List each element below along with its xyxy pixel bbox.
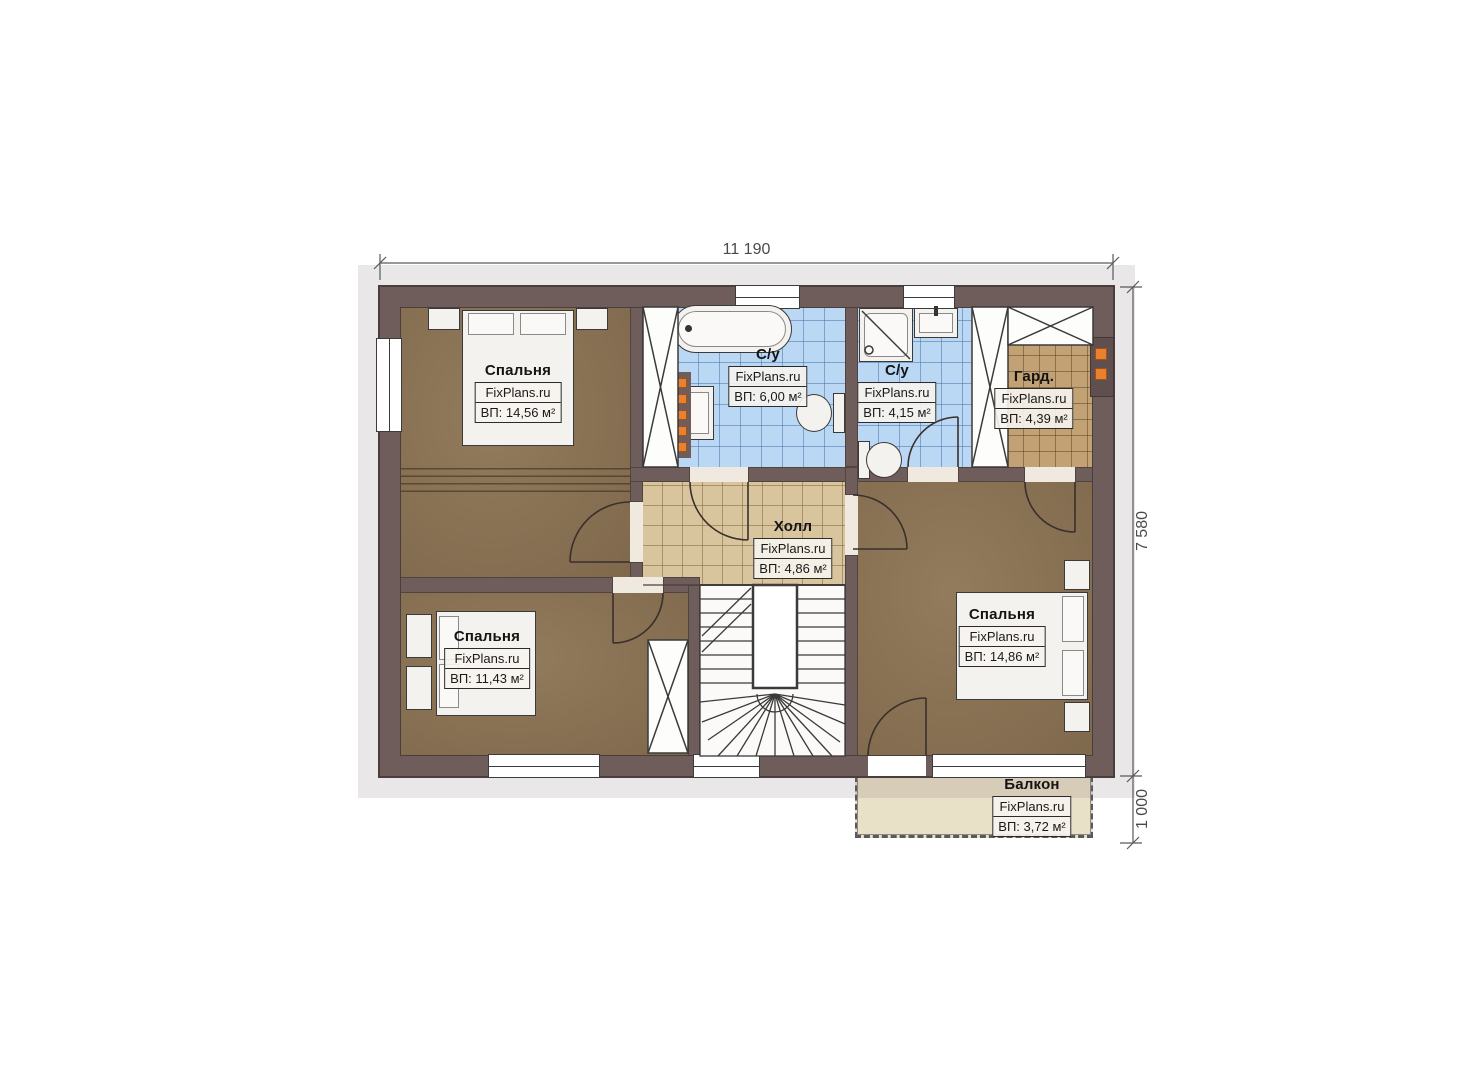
room-area: ВП: 11,43 м² xyxy=(445,668,529,688)
bathtub-faucet xyxy=(685,325,692,332)
window-balcony-glazing xyxy=(932,754,1086,778)
window-top-bathroom-ensuite xyxy=(903,285,955,309)
room-area: ВП: 4,86 м² xyxy=(754,558,831,578)
label-box: FixPlans.ru ВП: 4,86 м² xyxy=(753,538,832,579)
nightstand xyxy=(1064,702,1090,732)
towel-radiator-segment xyxy=(677,410,687,420)
bathtub-inner xyxy=(678,311,786,347)
watermark-text: FixPlans.ru xyxy=(960,627,1045,646)
room-name: Спальня xyxy=(959,606,1046,623)
toilet-tank xyxy=(833,393,845,433)
nightstand xyxy=(1064,560,1090,590)
label-box: FixPlans.ru ВП: 4,15 м² xyxy=(857,382,936,423)
pillow xyxy=(520,313,566,335)
towel-radiator-segment xyxy=(677,426,687,436)
watermark-text: FixPlans.ru xyxy=(858,383,935,402)
dimension-top-width: 11 190 xyxy=(380,241,1113,259)
room-label-bedroom-master: Спальня FixPlans.ru ВП: 14,86 м² xyxy=(959,606,1046,667)
sink-basin xyxy=(919,313,953,333)
room-name: Спальня xyxy=(444,628,530,645)
watermark-text: FixPlans.ru xyxy=(729,367,806,386)
label-box: FixPlans.ru ВП: 3,72 м² xyxy=(992,796,1071,837)
room-area: ВП: 14,86 м² xyxy=(960,646,1045,666)
nightstand xyxy=(406,666,432,710)
room-label-bathroom-main: С/у FixPlans.ru ВП: 6,00 м² xyxy=(728,346,807,407)
room-label-hall: Холл FixPlans.ru ВП: 4,86 м² xyxy=(753,518,832,579)
towel-radiator-segment xyxy=(677,442,687,452)
label-box: FixPlans.ru ВП: 4,39 м² xyxy=(994,388,1073,429)
watermark-text: FixPlans.ru xyxy=(995,389,1072,408)
toilet-bowl xyxy=(866,442,902,478)
nightstand xyxy=(428,308,460,330)
room-area: ВП: 4,15 м² xyxy=(858,402,935,422)
room-name: Балкон xyxy=(992,776,1071,793)
room-area: ВП: 14,56 м² xyxy=(476,402,561,422)
towel-radiator-segment xyxy=(677,394,687,404)
towel-radiator-segment xyxy=(677,378,687,388)
label-box: FixPlans.ru ВП: 14,86 м² xyxy=(959,626,1046,667)
room-name: Холл xyxy=(753,518,832,535)
label-box: FixPlans.ru ВП: 11,43 м² xyxy=(444,648,530,689)
room-area: ВП: 3,72 м² xyxy=(993,816,1070,836)
label-box: FixPlans.ru ВП: 14,56 м² xyxy=(475,382,562,423)
room-name: С/у xyxy=(728,346,807,363)
window-bottom-bedroom-bl xyxy=(488,754,600,778)
sink-tap xyxy=(934,306,938,316)
room-label-balcony: Балкон FixPlans.ru ВП: 3,72 м² xyxy=(992,776,1071,837)
dimension-right-height: 7 580 xyxy=(1134,500,1154,562)
watermark-text: FixPlans.ru xyxy=(476,383,561,402)
window-left-wall xyxy=(376,338,402,432)
room-name: Спальня xyxy=(475,362,562,379)
shower-tray-inner xyxy=(864,313,908,357)
pillow xyxy=(1062,650,1084,696)
room-label-wardrobe: Гард. FixPlans.ru ВП: 4,39 м² xyxy=(994,368,1073,429)
chimney-flue-1 xyxy=(1095,348,1107,360)
room-label-bathroom-ensuite: С/у FixPlans.ru ВП: 4,15 м² xyxy=(857,362,936,423)
room-area: ВП: 4,39 м² xyxy=(995,408,1072,428)
room-label-bedroom-bottom-left: Спальня FixPlans.ru ВП: 11,43 м² xyxy=(444,628,530,689)
window-bottom-stairs xyxy=(693,754,760,778)
room-area: ВП: 6,00 м² xyxy=(729,386,806,406)
pillow xyxy=(1062,596,1084,642)
dimension-balcony-depth: 1 000 xyxy=(1134,778,1154,840)
room-name: С/у xyxy=(857,362,936,379)
pillow xyxy=(468,313,514,335)
chimney-block xyxy=(1090,337,1114,397)
chimney-flue-2 xyxy=(1095,368,1107,380)
door-opening-balcony xyxy=(868,756,926,776)
nightstand xyxy=(406,614,432,658)
label-box: FixPlans.ru ВП: 6,00 м² xyxy=(728,366,807,407)
room-name: Гард. xyxy=(994,368,1073,385)
room-label-bedroom-top-left: Спальня FixPlans.ru ВП: 14,56 м² xyxy=(475,362,562,423)
floor-plan-page: Спальня FixPlans.ru ВП: 14,56 м² С/у Fix… xyxy=(0,0,1473,1080)
watermark-text: FixPlans.ru xyxy=(445,649,529,668)
watermark-text: FixPlans.ru xyxy=(754,539,831,558)
nightstand xyxy=(576,308,608,330)
watermark-text: FixPlans.ru xyxy=(993,797,1070,816)
